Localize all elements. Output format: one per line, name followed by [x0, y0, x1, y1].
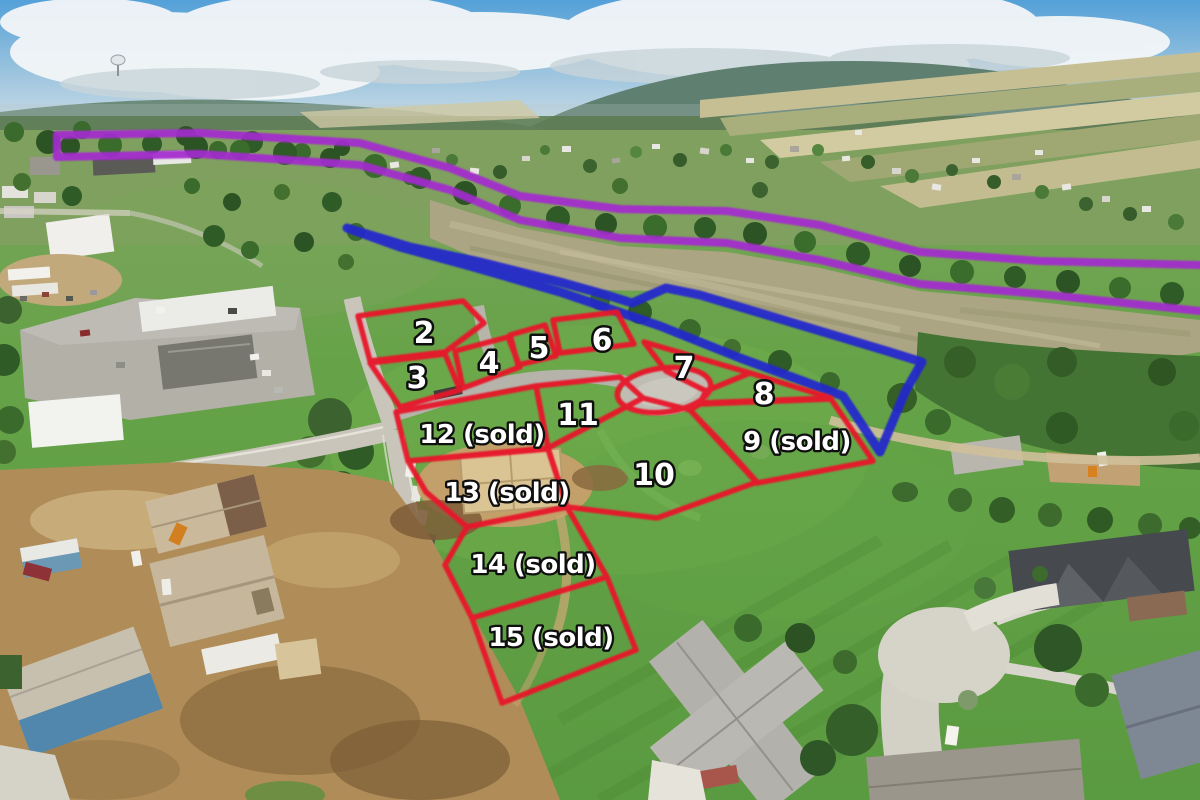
lot-label-8: 8	[754, 377, 775, 412]
warehouse-building	[28, 394, 124, 448]
lot-label-10: 10	[633, 458, 675, 493]
lot-label-3: 3	[407, 361, 428, 396]
lot-label-6: 6	[592, 323, 613, 358]
lot-label-2: 2	[414, 316, 435, 351]
aerial-photo: 2 3 4 5 6 7 8 9 (sold) 10 11 12 (sold) 1…	[0, 0, 1200, 800]
aerial-lot-map: 2 3 4 5 6 7 8 9 (sold) 10 11 12 (sold) 1…	[0, 0, 1200, 800]
lot-label-15: 15 (sold)	[488, 623, 613, 653]
lot-label-12: 12 (sold)	[419, 420, 544, 450]
lot-label-4: 4	[479, 346, 500, 381]
lot-label-13: 13 (sold)	[444, 478, 569, 508]
lot-label-14: 14 (sold)	[470, 550, 595, 580]
white-van	[161, 579, 171, 596]
lot-label-7: 7	[674, 351, 695, 386]
lot-label-5: 5	[529, 331, 550, 366]
framed-house	[275, 638, 322, 679]
lot-label-11: 11	[557, 398, 599, 433]
lot-label-9: 9 (sold)	[743, 427, 851, 457]
